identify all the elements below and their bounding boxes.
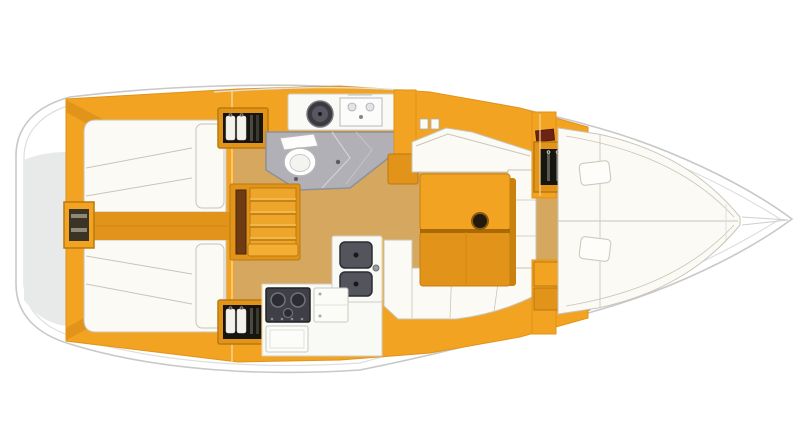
hanging-locker-port xyxy=(218,108,268,148)
stove-burner-small xyxy=(284,309,293,318)
shirt-icon xyxy=(237,309,246,333)
table-cupholder xyxy=(472,213,488,229)
steps-side-plank xyxy=(236,190,246,254)
stove-burner xyxy=(291,293,305,307)
stove-burner xyxy=(271,293,285,307)
fridge-handle xyxy=(319,315,322,318)
toilet-bowl xyxy=(290,155,310,172)
shower-drain xyxy=(336,160,340,164)
faucet-icon xyxy=(373,265,379,271)
aft-cabin-starboard xyxy=(84,240,226,332)
sink-unit xyxy=(340,98,382,126)
table-center-rail xyxy=(420,229,510,233)
sink-drain xyxy=(359,115,363,119)
hanging-clothes xyxy=(250,308,253,334)
locker-latch xyxy=(420,119,428,129)
transom-platform xyxy=(24,152,66,326)
bottom-step xyxy=(248,244,298,256)
console-slat xyxy=(71,228,87,232)
console-slat xyxy=(71,214,87,218)
sink-drain xyxy=(354,282,359,287)
shirt-icon xyxy=(237,116,246,140)
hanging-clothes xyxy=(256,308,259,334)
washbasin-drain xyxy=(318,112,322,116)
saloon-table-leaf-aft xyxy=(420,232,510,286)
hanging-locker-starboard xyxy=(218,300,268,344)
forward-v-berth xyxy=(558,128,740,314)
stowed-gear xyxy=(536,129,555,142)
floor-drain xyxy=(294,177,298,181)
companionway-steps xyxy=(230,184,300,260)
floorplan-stage xyxy=(0,0,800,446)
aft-cabin-port xyxy=(84,120,226,212)
locker-latch xyxy=(431,119,439,129)
saloon-table-leaf-fwd xyxy=(420,174,510,230)
hanging-clothes xyxy=(256,115,259,141)
stern-console-screen xyxy=(69,209,89,241)
shirt-icon xyxy=(226,116,235,140)
v-berth-pillow xyxy=(579,160,611,185)
v-berth-pillow xyxy=(579,236,611,261)
faucet-knob xyxy=(348,103,356,111)
sink-drain xyxy=(354,253,359,258)
yacht-floorplan xyxy=(0,0,800,446)
faucet-knob xyxy=(366,103,374,111)
shirt-icon xyxy=(226,309,235,333)
hanging-clothes xyxy=(250,115,253,141)
fridge-handle xyxy=(319,293,322,296)
